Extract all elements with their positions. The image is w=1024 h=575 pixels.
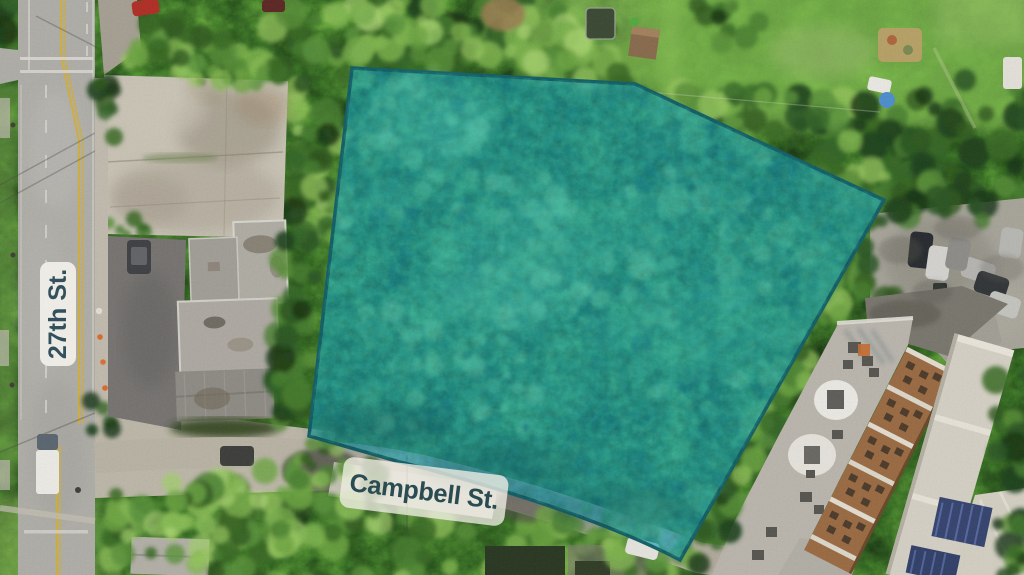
svg-text:27th St.: 27th St. — [44, 269, 72, 359]
